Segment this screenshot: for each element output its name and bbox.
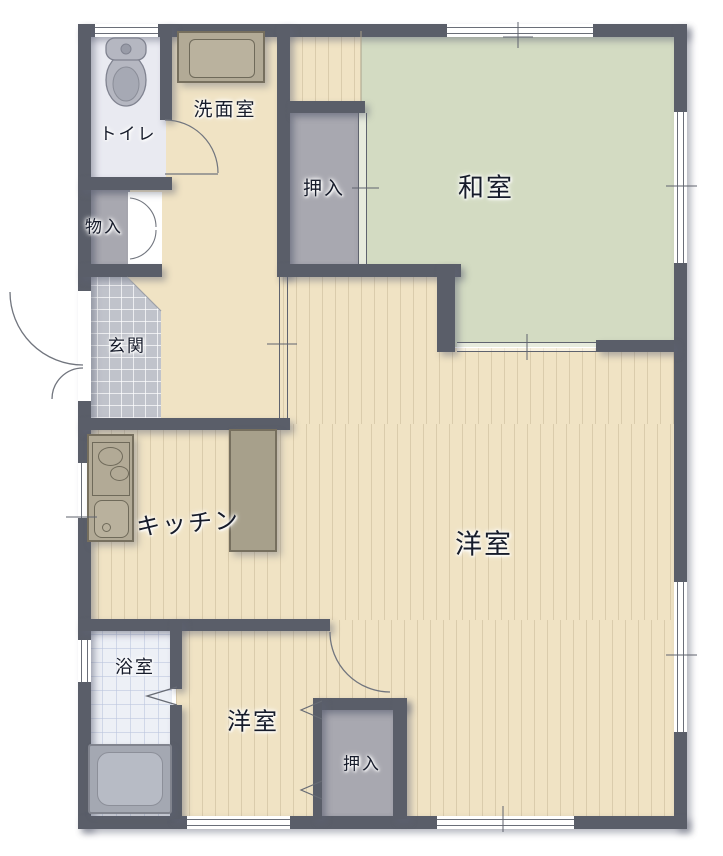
room-label-toilet: トイレ [100,120,157,145]
room-door-swing-icon [330,632,390,692]
floor-plan: トイレ 洗面室 押入 和室 物入 玄関 キッチン 洋室 浴室 洋室 押入 [0,0,723,856]
closet-door-icon [301,701,322,719]
room-label-washroom: 洗面室 [193,95,256,122]
room-label-closet-north: 押入 [303,174,345,201]
entrance-door-swing-icon [52,368,83,399]
toilet-door-swing-icon [165,120,218,173]
toilet-bowl-icon [106,38,146,106]
entrance-door-swing-icon [10,292,83,365]
storage-door-swing-icon [130,198,156,227]
room-label-storage: 物入 [85,213,123,238]
room-label-kitchen: キッチン [135,500,241,542]
room-label-western-room-main: 洋室 [455,523,513,562]
room-label-japanese-room: 和室 [458,168,514,205]
storage-door-swing-icon [130,230,156,259]
room-label-entrance: 玄関 [108,332,146,357]
bath-folding-door-icon [147,687,177,705]
room-label-bathroom: 浴室 [115,653,155,679]
room-label-western-room-south: 洋室 [227,702,279,737]
room-label-closet-south: 押入 [343,750,381,775]
closet-door-icon [301,781,322,799]
entrance-step-edge [127,277,161,311]
